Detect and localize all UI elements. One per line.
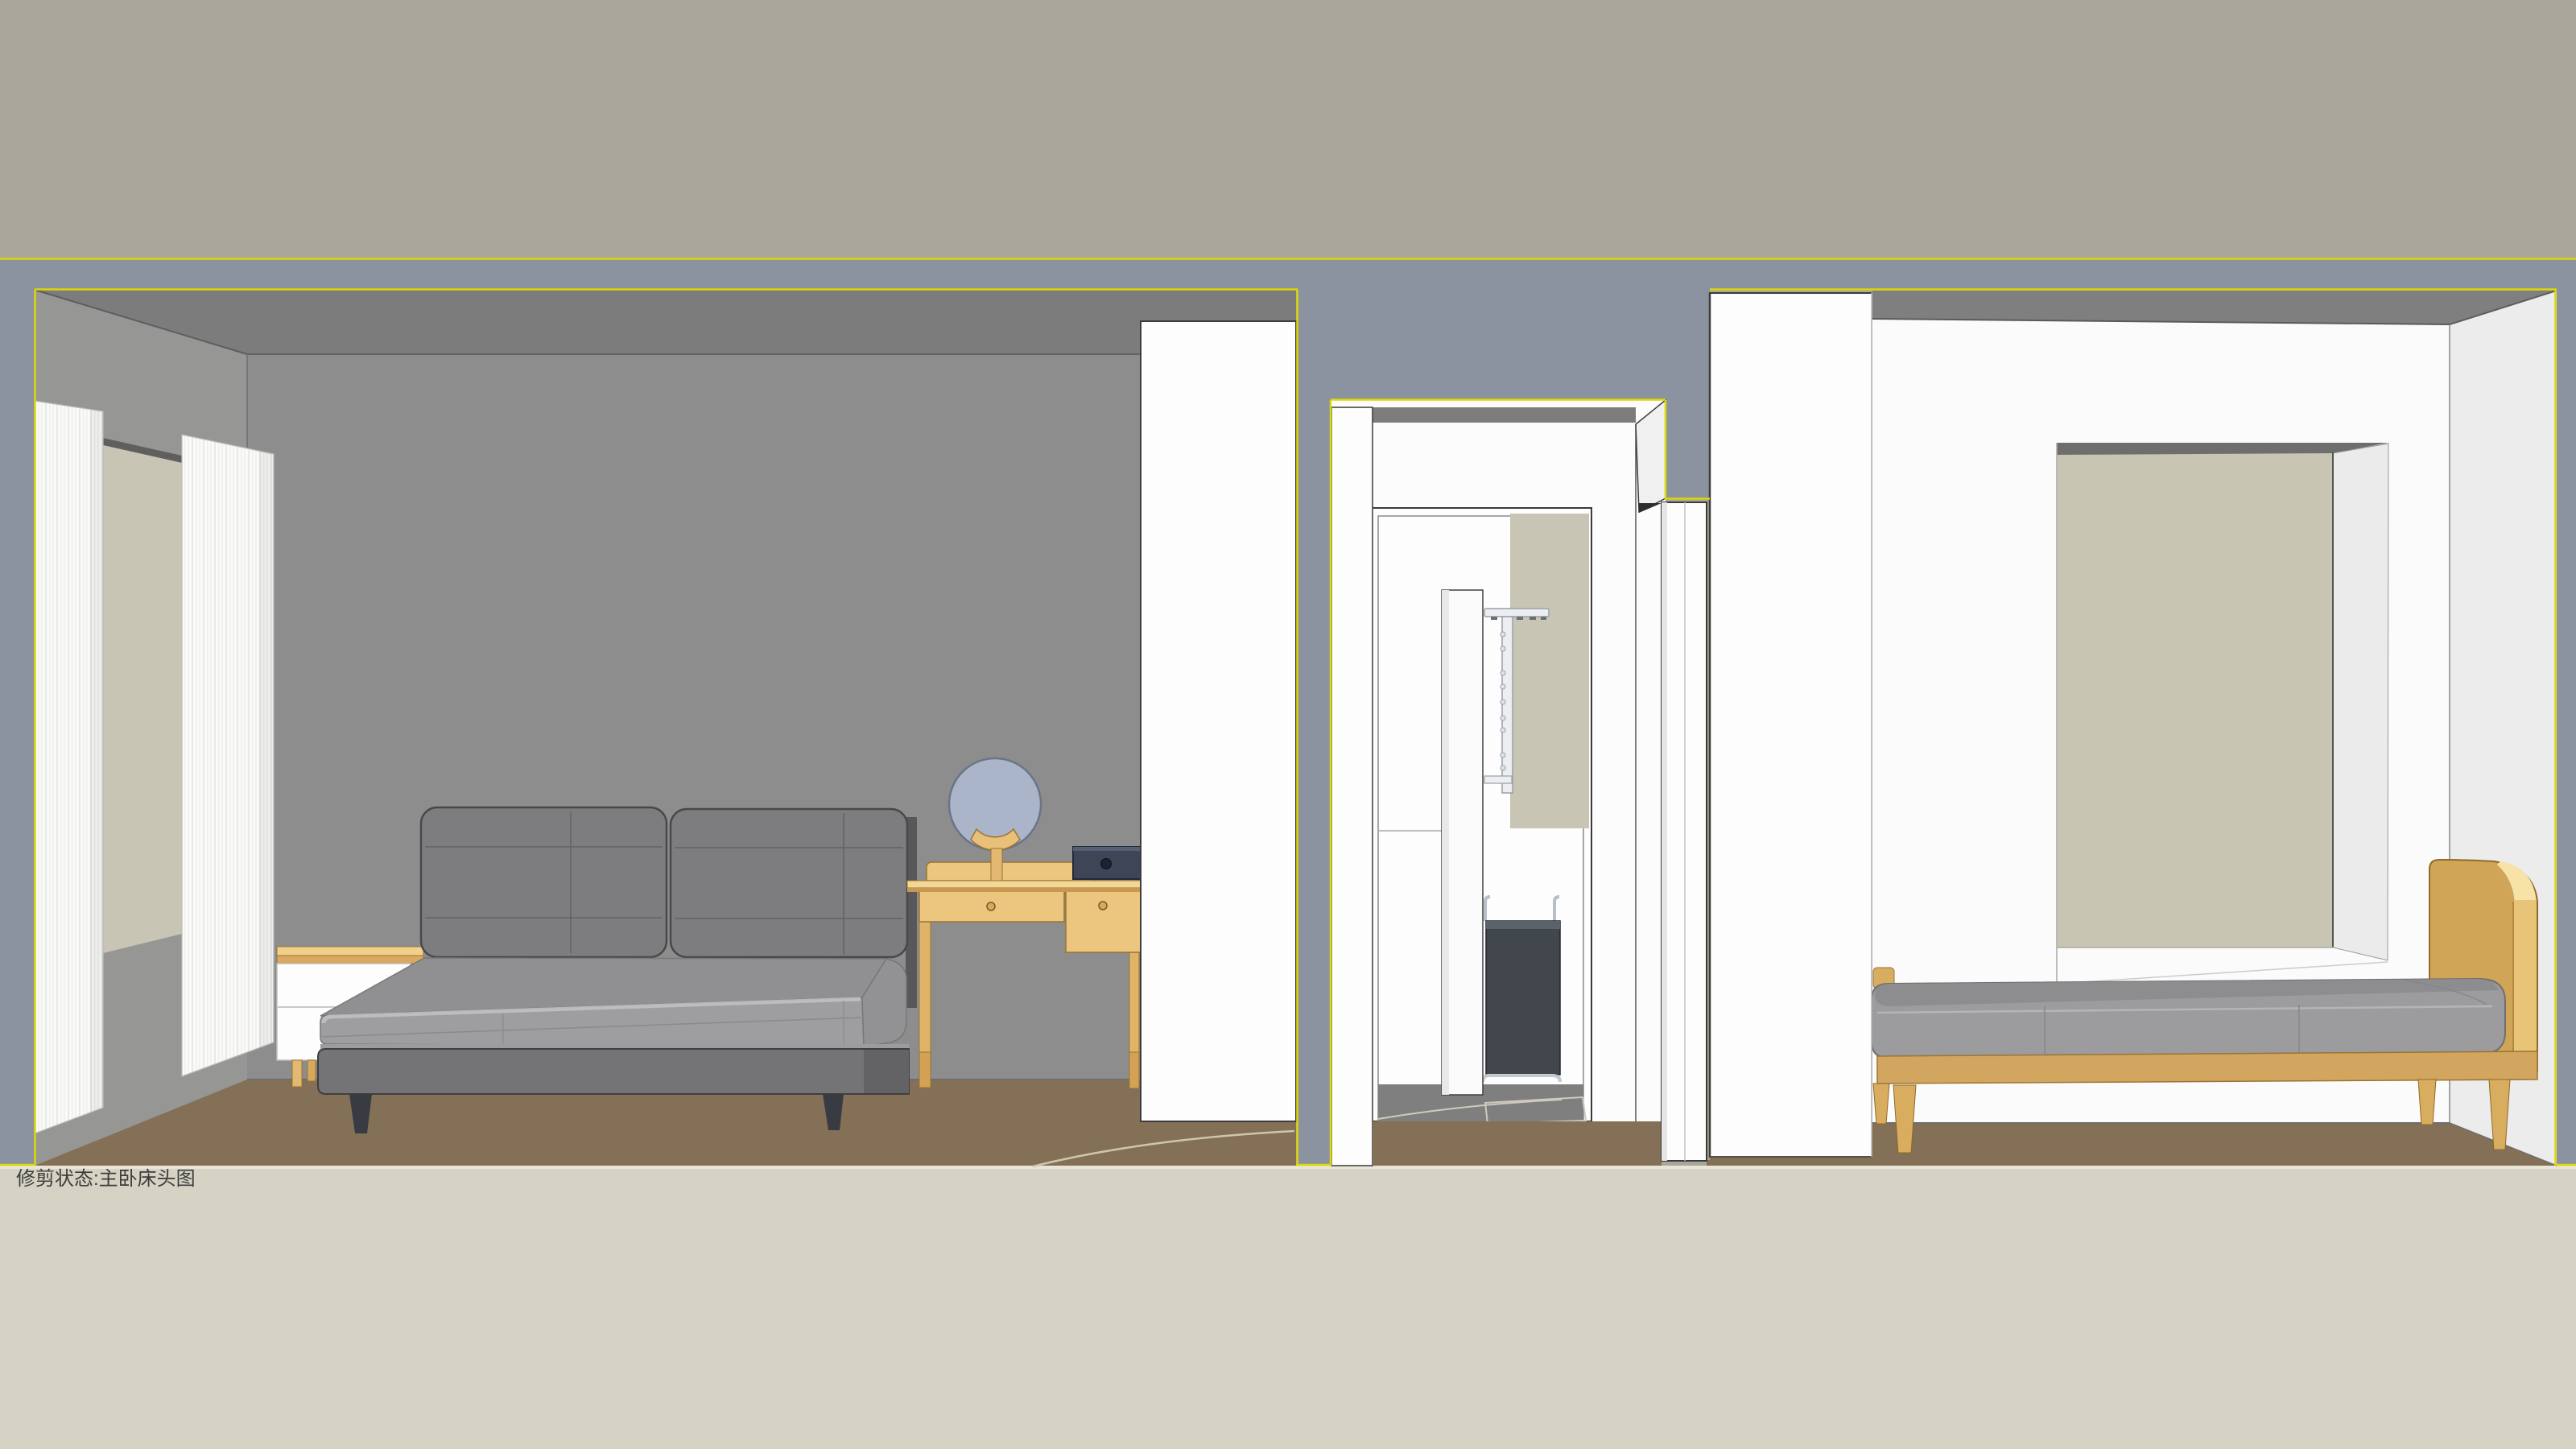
svg-text:修剪状态:主卧床头图: 修剪状态:主卧床头图 xyxy=(16,1168,196,1190)
